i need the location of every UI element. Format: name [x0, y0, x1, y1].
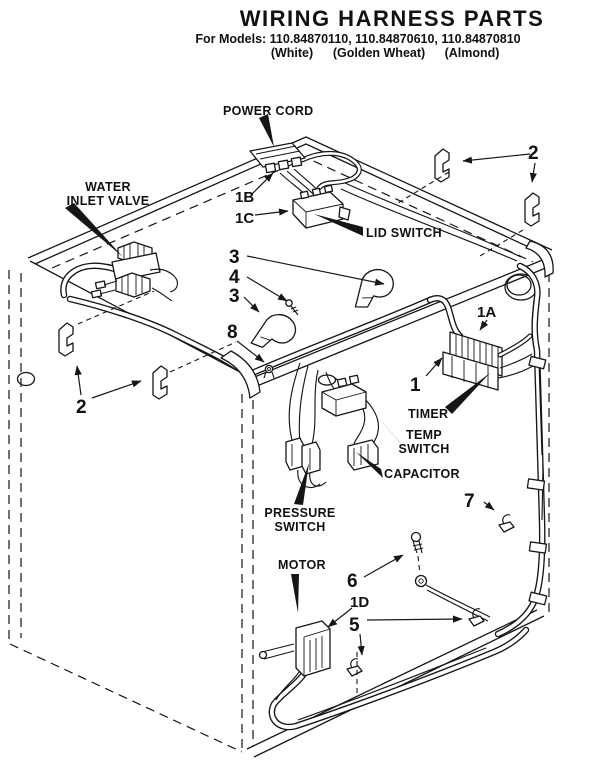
- callout-7: 7: [464, 491, 475, 512]
- ring-terminal: [416, 576, 427, 587]
- label-temp-switch-line1: TEMP: [406, 428, 442, 442]
- harness-clip: [59, 323, 73, 356]
- callout-4: 4: [229, 267, 240, 288]
- water-inlet-valve: [91, 242, 177, 301]
- callout-5: 5: [349, 615, 360, 636]
- power-cord-arrow: [259, 114, 274, 147]
- water-inlet-valve-arrow: [65, 203, 123, 257]
- callout-1a: 1A: [477, 304, 496, 321]
- pressure-switch-bundle: [286, 363, 378, 488]
- callout-1d: 1D: [350, 594, 369, 611]
- label-timer: TIMER: [408, 407, 448, 421]
- callout-8: 8: [227, 322, 238, 343]
- temp-switch-connector: [322, 375, 366, 416]
- callout-3-top: 3: [229, 247, 240, 268]
- wiring-harness-diagram: POWER CORD WATER INLET VALVE LID SWITCH …: [0, 0, 608, 768]
- callout-leaders: [77, 154, 535, 655]
- screw-8: [264, 365, 274, 378]
- harness-strap: [355, 267, 395, 313]
- power-cord-assembly: [250, 143, 521, 261]
- screw-4: [286, 300, 298, 315]
- timer-connector: [443, 332, 533, 390]
- edge-clip: [469, 616, 484, 626]
- motor-connector: [260, 621, 331, 676]
- callout-6: 6: [347, 571, 358, 592]
- edge-clips-5-7: [347, 515, 514, 696]
- label-pressure-switch-line1: PRESSURE: [264, 506, 335, 520]
- corner-shield: [221, 351, 260, 398]
- label-water-inlet-line1: WATER: [85, 180, 131, 194]
- motor-arrow: [291, 574, 299, 613]
- callout-2-right: 2: [528, 143, 539, 164]
- harness-clip: [153, 366, 167, 399]
- label-pressure-switch-line2: SWITCH: [274, 520, 325, 534]
- harness-strap: [251, 308, 300, 360]
- label-capacitor: CAPACITOR: [384, 467, 460, 481]
- callout-3-bottom: 3: [229, 286, 240, 307]
- label-water-inlet-line2: INLET VALVE: [67, 194, 150, 208]
- ground-screw: [412, 533, 421, 542]
- callout-2-left: 2: [76, 397, 87, 418]
- label-motor: MOTOR: [278, 558, 326, 572]
- parts-diagram-page: WIRING HARNESS PARTS For Models: 110.848…: [0, 0, 608, 768]
- top-panel-hole: [319, 375, 336, 385]
- label-lid-switch: LID SWITCH: [366, 226, 442, 240]
- callout-1: 1: [410, 375, 421, 396]
- callout-1c: 1C: [235, 210, 254, 227]
- motor-lever-pin: [260, 652, 267, 659]
- harness-clip: [525, 193, 539, 226]
- label-power-cord: POWER CORD: [223, 104, 314, 118]
- ground-wire-assembly: [412, 533, 491, 622]
- pressure-switch-arrow: [294, 463, 309, 505]
- label-temp-switch-line2: SWITCH: [398, 442, 449, 456]
- pressure-switch-connectors: [286, 438, 320, 474]
- edge-clip: [499, 522, 514, 532]
- cable-tie: [529, 542, 546, 553]
- cable-tie: [527, 479, 544, 490]
- front-panel-hole: [18, 373, 35, 386]
- callout-1b: 1B: [235, 189, 254, 206]
- edge-clip: [347, 666, 362, 676]
- harness-clip: [435, 149, 449, 182]
